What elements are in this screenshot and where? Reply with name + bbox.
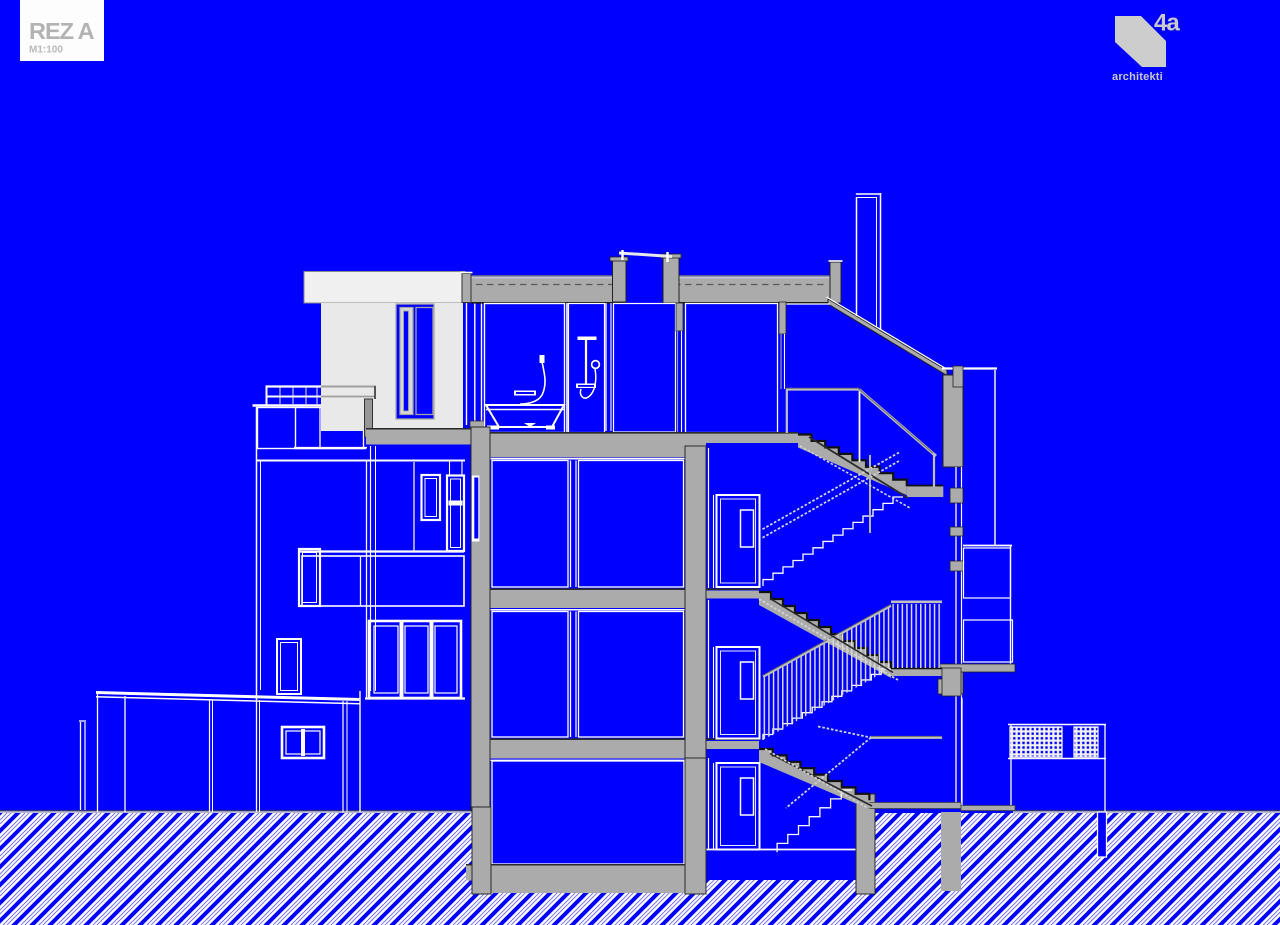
svg-text:architekti: architekti [1112,71,1163,83]
svg-text:REZ A: REZ A [29,18,95,44]
svg-text:M1:100: M1:100 [29,45,63,56]
svg-text:4a: 4a [1154,10,1180,37]
